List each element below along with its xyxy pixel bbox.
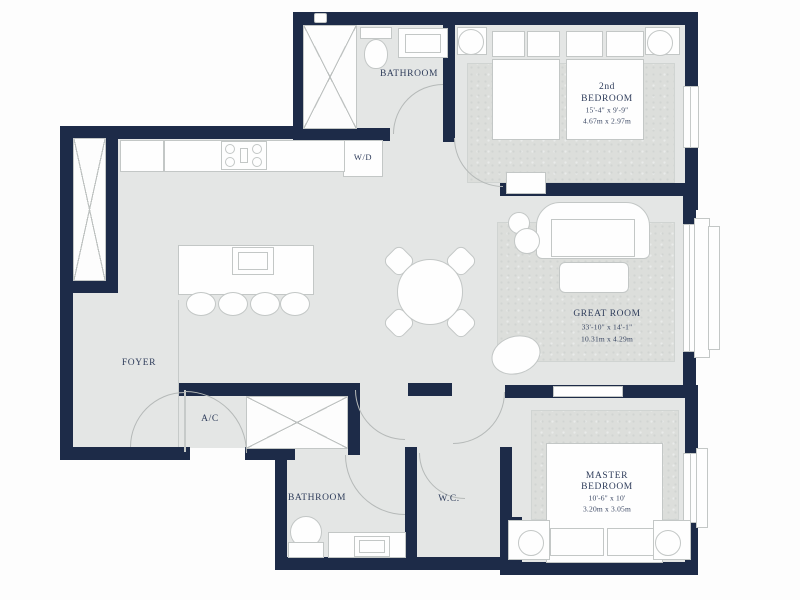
bedroom2-dims-m: 4.67m x 2.97m [583,117,631,126]
wall-bathroom2-left [275,453,287,570]
sofa-seat [551,219,635,257]
bathroom-top-label: BATHROOM [380,69,438,79]
master-opening [553,386,623,397]
lamp-icon [655,530,681,556]
bed-mattress [492,59,560,140]
toilet-tank [360,27,392,39]
bedroom2-dims-ft: 15'-4" x 9'-9" [586,106,629,115]
pillow [527,31,560,57]
pillow [492,31,525,57]
lamp-icon [647,30,673,56]
wall-master-bottom [505,562,698,575]
pillow [606,31,644,57]
wall-hall-top [408,383,452,396]
wall-foyer-bottom [60,447,190,460]
great-room-label: GREAT ROOM [573,309,640,319]
wall-master-right-upper [685,385,698,455]
wall-bedroom2-right-upper [685,12,698,88]
bar-stool [280,292,310,316]
bar-stool [186,292,216,316]
stove-center [240,148,248,163]
bedroom2-label-line1: 2nd [599,82,615,92]
burner [252,157,262,167]
side-table [514,228,540,254]
sink-basin [359,540,385,553]
window-greatroom-mullion [689,224,690,352]
master-label-line1: MASTER [586,471,628,481]
window-master-frame [696,448,708,528]
window-bedroom2-mullion [690,86,691,148]
wall-wc-left [405,447,417,570]
wall-top [293,12,697,25]
bar-stool [250,292,280,316]
wall-pantry-bottom [73,281,118,293]
laundry-label: W/D [354,152,372,162]
dining-table [397,259,463,325]
window-bedroom2 [683,86,699,148]
sink-icon [405,34,441,53]
shower-stall [303,25,357,129]
coffee-table [559,262,629,293]
bathroom-bottom-label: BATHROOM [288,493,346,503]
pillow [550,528,604,556]
bedroom2-label-line2: BEDROOM [581,94,633,104]
pantry-closet-x [73,138,106,281]
master-label-line2: BEDROOM [581,482,633,492]
master-dims-ft: 10'-6" x 10' [589,494,626,503]
lamp-icon [518,530,544,556]
wall-left-outer [60,126,73,460]
bar-stool [218,292,248,316]
wc-label: W.C. [438,494,460,504]
wall-pantry-right [106,138,118,293]
bedroom2-threshold [506,172,546,194]
burner [225,157,235,167]
great-room-dims-m: 10.31m x 4.29m [581,335,633,344]
master-dims-m: 3.20m x 3.05m [583,505,631,514]
lamp-icon [458,29,484,55]
wall-bathroom2-bottom [275,557,510,570]
floor-plan: BATHROOM W/D 2nd BEDROOM 15'-4" x 9'-9" … [0,0,800,600]
wall-master-left [500,447,512,527]
great-room-dims-ft: 33'-10" x 14'-1" [582,323,633,332]
hall-closet-x [246,396,348,449]
toilet-icon [364,39,388,69]
toilet-tank [288,542,324,558]
pillow [566,31,603,57]
balcony-rail [708,226,720,350]
burner [225,144,235,154]
shower-head-icon [314,13,327,23]
island-sink-basin [238,252,268,270]
burner [252,144,262,154]
ac-label: A/C [201,414,219,424]
window-master-mullion [690,453,691,523]
foyer-label: FOYER [122,358,156,368]
refrigerator [120,140,164,172]
